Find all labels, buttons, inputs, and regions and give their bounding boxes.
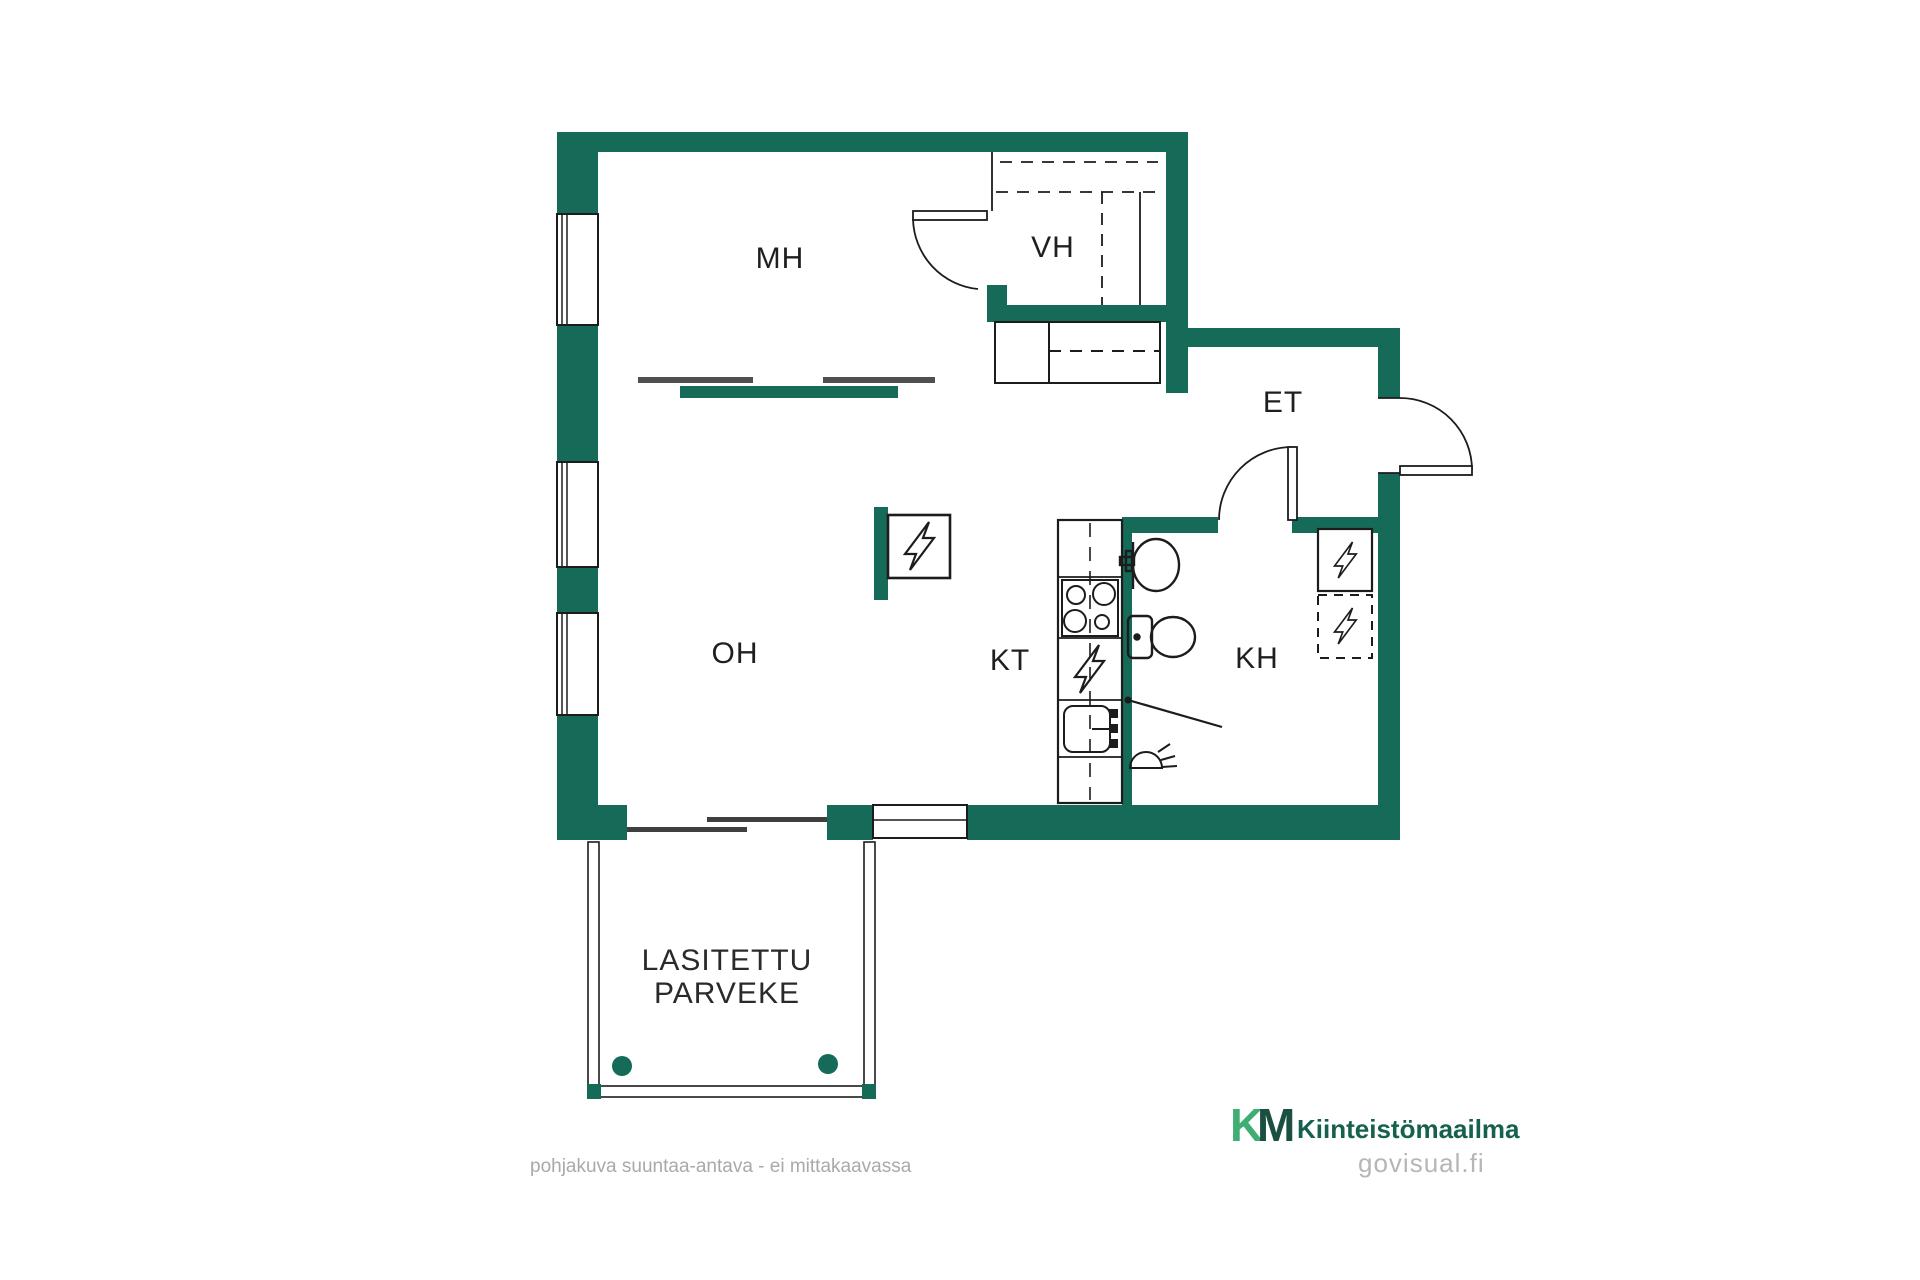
- disclaimer-text: pohjakuva suuntaa-antava - ei mittakaava…: [530, 1156, 912, 1177]
- window-bottom: [873, 805, 967, 838]
- sliding-panel: [680, 386, 898, 398]
- kitchen: [1058, 520, 1122, 803]
- wall-oh-stub: [874, 507, 888, 600]
- balcony-slider-1: [707, 817, 827, 822]
- wall-top: [557, 132, 1188, 152]
- room-label-mh: MH: [756, 242, 805, 275]
- brand-logo-m: M: [1257, 1099, 1295, 1151]
- room-label-vh: VH: [1031, 231, 1075, 264]
- pillar-dot-right: [818, 1054, 838, 1074]
- balcony-door-opening: [627, 805, 827, 840]
- wall-et-top: [1166, 328, 1400, 347]
- electrical-box-kh-2: [1318, 595, 1372, 658]
- door-entrance: [1378, 398, 1472, 475]
- brand-logo: K M Kiinteistömaailma: [1230, 1099, 1520, 1151]
- electrical-box-oh: [888, 515, 950, 578]
- kitchen-counter: [1058, 520, 1122, 803]
- door-mh: [913, 211, 987, 289]
- window-left-1: [557, 214, 598, 325]
- toilet-icon: [1128, 616, 1195, 658]
- floor-plan-svg: MH VH ET OH KT KH LASITETTU PARVEKE pohj…: [0, 0, 1920, 1280]
- pillar-dot-left: [612, 1056, 632, 1076]
- wall-right-lower: [1378, 473, 1400, 840]
- wall-left-1: [557, 132, 598, 214]
- wall-left-3: [557, 567, 598, 613]
- brand-logo-name: Kiinteistömaailma: [1297, 1114, 1520, 1144]
- wall-right-upper: [1378, 347, 1400, 398]
- bathroom: [1120, 539, 1222, 768]
- wall-bottom-1: [557, 805, 627, 840]
- footer: pohjakuva suuntaa-antava - ei mittakaava…: [530, 1099, 1520, 1178]
- balcony-label-line1: LASITETTU: [642, 944, 813, 977]
- wall-kh-top-1: [1122, 517, 1218, 533]
- wall-vh-bottom: [987, 305, 1188, 322]
- wall-vh-right: [1166, 132, 1188, 393]
- hall-cabinet: [995, 322, 1160, 383]
- shower-screen: [1125, 697, 1222, 727]
- watermark-text: govisual.fi: [1358, 1148, 1485, 1178]
- room-label-et: ET: [1263, 386, 1303, 419]
- room-labels: MH VH ET OH KT KH LASITETTU PARVEKE: [642, 231, 1304, 1010]
- electrical-box-kh-1: [1318, 529, 1372, 591]
- wall-mh-door-stub: [987, 285, 1007, 322]
- room-label-oh: OH: [712, 637, 759, 670]
- room-label-kt: KT: [990, 644, 1030, 677]
- window-left-2: [557, 462, 598, 567]
- floor-plan-page: MH VH ET OH KT KH LASITETTU PARVEKE pohj…: [0, 0, 1920, 1280]
- balcony-corner-left: [587, 1084, 601, 1099]
- balcony-corner-right: [862, 1084, 876, 1099]
- balcony-slider-2: [627, 827, 747, 832]
- room-label-kh: KH: [1235, 642, 1279, 675]
- walls: [557, 132, 1400, 840]
- wall-bottom-2: [827, 805, 873, 840]
- wall-left-2: [557, 325, 598, 462]
- vh-wardrobe: [992, 152, 1158, 305]
- sliding-track-left: [638, 377, 753, 383]
- door-kh: [1219, 447, 1297, 520]
- mh-sliding-doors: [638, 377, 935, 398]
- wall-bottom-3: [967, 805, 1400, 840]
- sliding-track-right: [823, 377, 935, 383]
- shower-icon: [1130, 744, 1177, 768]
- balcony-label-line2: PARVEKE: [654, 977, 800, 1010]
- window-left-3: [557, 613, 598, 715]
